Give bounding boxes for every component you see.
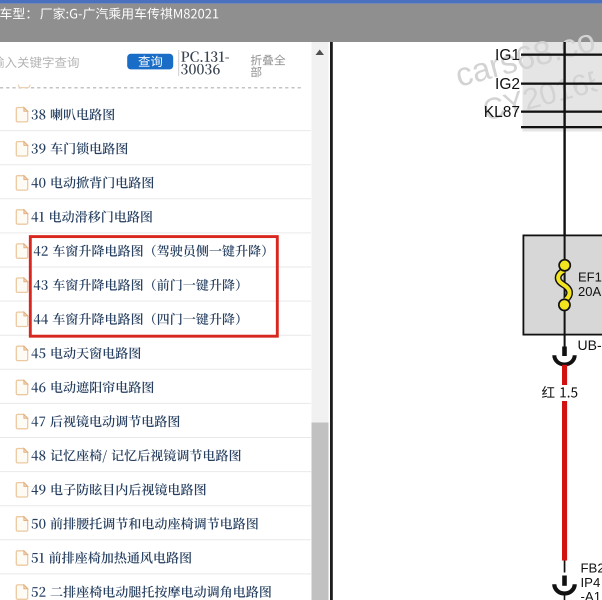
svg-text:UB-: UB- (578, 337, 602, 353)
svg-text:KL87: KL87 (484, 104, 520, 121)
svg-text:FB29: FB29 (581, 561, 602, 576)
svg-text:EF13: EF13 (578, 270, 602, 285)
svg-text:IP4: IP4 (581, 575, 601, 590)
svg-text:IG1: IG1 (495, 47, 520, 64)
svg-text:20A: 20A (578, 284, 601, 299)
svg-text:-A1: -A1 (581, 589, 602, 600)
svg-text:IG2: IG2 (495, 76, 520, 93)
